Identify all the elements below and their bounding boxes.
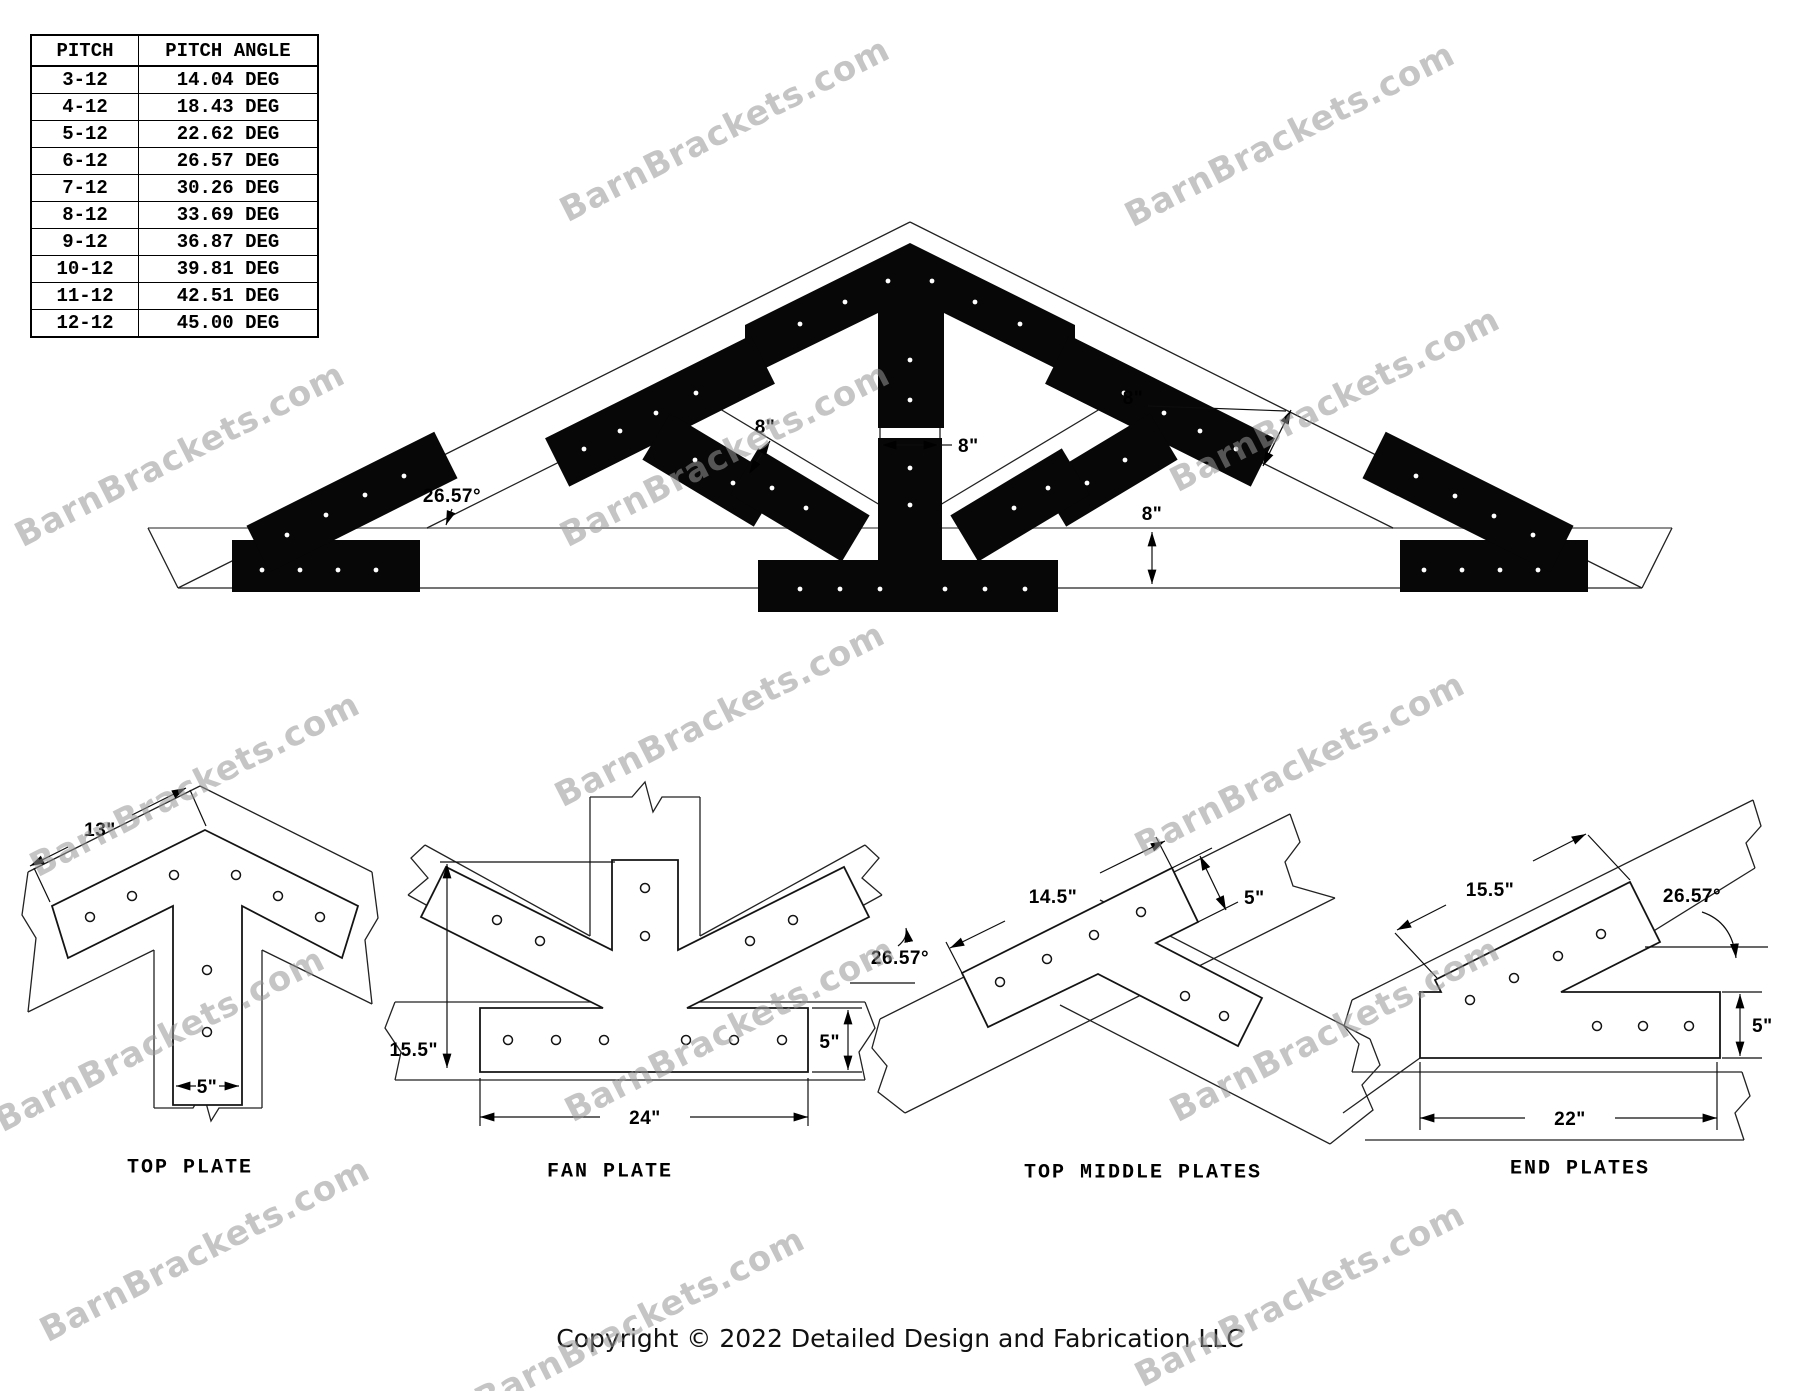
pitch-cell: 6-12 (31, 148, 139, 175)
plate-height-dim: 15.5" (390, 1040, 439, 1061)
angle-cell: 45.00 DEG (139, 310, 319, 338)
left-heel-bracket (232, 432, 458, 592)
table-row: 12-1245.00 DEG (31, 310, 318, 338)
table-row: 10-1239.81 DEG (31, 256, 318, 283)
length-dim: 22" (1554, 1109, 1586, 1130)
top-middle-plates-title: TOP MIDDLE PLATES (1024, 1162, 1262, 1185)
angle-cell: 22.62 DEG (139, 121, 319, 148)
arm-length-dim: 13" (84, 820, 116, 841)
pitch-column-header: PITCH (31, 35, 139, 66)
table-row: 9-1236.87 DEG (31, 229, 318, 256)
angle-cell: 30.26 DEG (139, 175, 319, 202)
table-header-row: PITCH PITCH ANGLE (31, 35, 318, 66)
bottom-fan-bracket (730, 438, 1089, 612)
height-dim: 5" (1752, 1016, 1773, 1037)
drawing-sheet: PITCH PITCH ANGLE 3-1214.04 DEG 4-1218.4… (0, 0, 1800, 1391)
table-row: 4-1218.43 DEG (31, 94, 318, 121)
fan-plate-title: FAN PLATE (547, 1161, 673, 1184)
plate-length-dim: 14.5" (1029, 887, 1078, 908)
plate-angle-dim: 26.57° (871, 948, 929, 969)
pitch-cell: 3-12 (31, 66, 139, 94)
pitch-cell: 10-12 (31, 256, 139, 283)
table-row: 7-1230.26 DEG (31, 175, 318, 202)
right-heel-bracket (1362, 432, 1588, 592)
pitch-cell: 4-12 (31, 94, 139, 121)
angle-cell: 14.04 DEG (139, 66, 319, 94)
copyright-text: Copyright © 2022 Detailed Design and Fab… (0, 1324, 1800, 1353)
angle-cell: 18.43 DEG (139, 94, 319, 121)
base-height-dim: 5" (819, 1032, 840, 1053)
top-plate-title: TOP PLATE (127, 1157, 253, 1180)
table-row: 3-1214.04 DEG (31, 66, 318, 94)
leg-width-dim: 5" (197, 1077, 218, 1098)
pitch-angle-dim: 26.57° (423, 486, 481, 507)
arm-length-dim: 15.5" (1466, 880, 1515, 901)
peak-bracket (745, 243, 1075, 428)
pitch-cell: 8-12 (31, 202, 139, 229)
end-plates-title: END PLATES (1510, 1158, 1650, 1181)
chord-height-dim: 8" (1142, 504, 1163, 525)
plate-width-dim: 5" (1244, 888, 1265, 909)
pitch-cell: 11-12 (31, 283, 139, 310)
table-row: 8-1233.69 DEG (31, 202, 318, 229)
pitch-cell: 12-12 (31, 310, 139, 338)
pitch-cell: 5-12 (31, 121, 139, 148)
pitch-angle-column-header: PITCH ANGLE (139, 35, 319, 66)
table-row: 6-1226.57 DEG (31, 148, 318, 175)
top-middle-plates-detail: 14.5" 5" (872, 814, 1380, 1144)
web-width-dim: 8" (755, 417, 776, 438)
angle-cell: 39.81 DEG (139, 256, 319, 283)
table-row: 5-1222.62 DEG (31, 121, 318, 148)
pitch-angle-table: PITCH PITCH ANGLE 3-1214.04 DEG 4-1218.4… (30, 34, 319, 338)
end-plate-outline (1420, 882, 1720, 1058)
angle-cell: 42.51 DEG (139, 283, 319, 310)
truss-diagram: 8" 8" 8" 8" 26.57° (148, 222, 1672, 612)
angle-dim: 26.57° (1663, 886, 1721, 907)
end-plates-detail: 15.5" 26.57° 5" 22" (1343, 800, 1773, 1140)
pitch-cell: 9-12 (31, 229, 139, 256)
base-width-dim: 24" (629, 1108, 661, 1129)
angle-cell: 33.69 DEG (139, 202, 319, 229)
pitch-cell: 7-12 (31, 175, 139, 202)
king-post-width-dim: 8" (958, 436, 979, 457)
fan-plate-detail: 15.5" 26.57° 5" 24" (385, 782, 929, 1129)
angle-cell: 26.57 DEG (139, 148, 319, 175)
table-row: 11-1242.51 DEG (31, 283, 318, 310)
top-plate-detail: 13" 5" (22, 786, 378, 1121)
rafter-width-dim: 8" (1123, 388, 1144, 409)
angle-cell: 36.87 DEG (139, 229, 319, 256)
